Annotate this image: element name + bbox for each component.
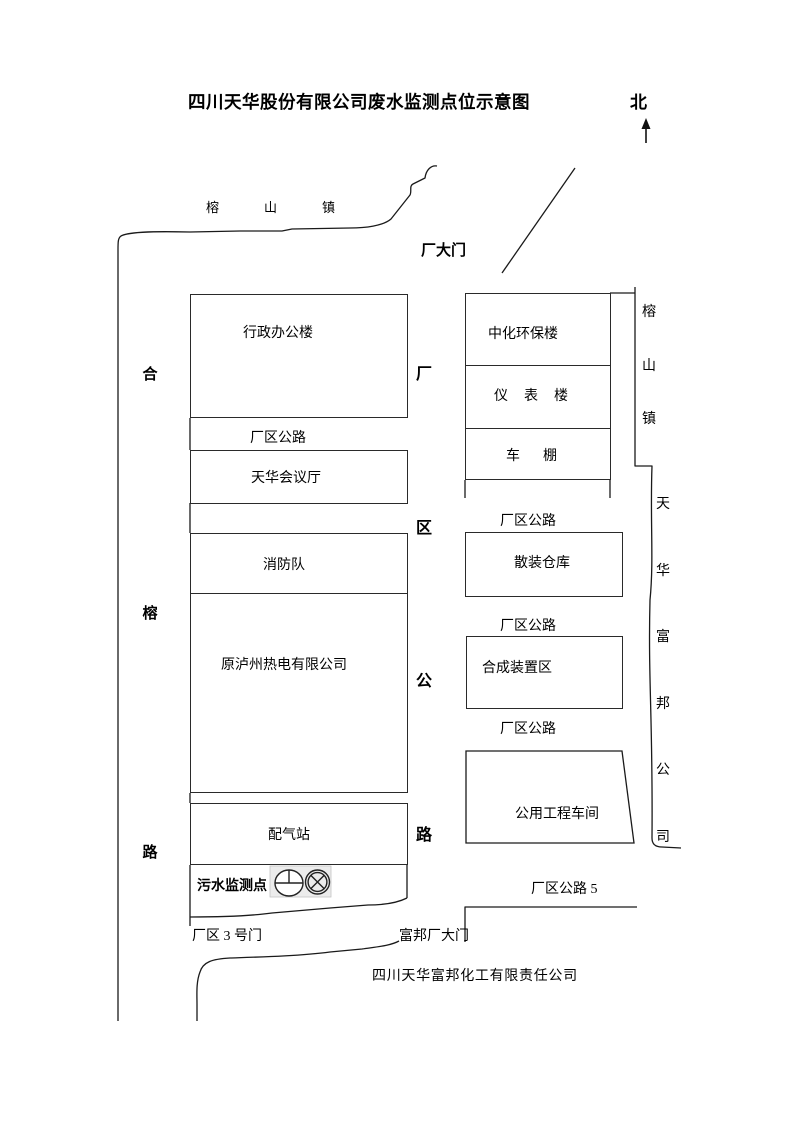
road5-label: 厂区公路 5 xyxy=(531,882,598,898)
sewage-monitoring-label: 污水监测点 xyxy=(197,877,267,893)
building-synth: 合成装置区 xyxy=(466,636,623,709)
building-label: 车棚 xyxy=(506,449,580,464)
building-bulk: 散装仓库 xyxy=(465,532,623,597)
building-utility-outline xyxy=(466,751,634,843)
vertical-char: 公 xyxy=(656,764,670,778)
vertical-char: 厂 xyxy=(416,367,432,383)
vertical-char: 富 xyxy=(656,631,670,645)
building-admin: 行政办公楼 xyxy=(190,294,408,418)
building-shed: 车棚 xyxy=(465,429,611,480)
left-road-vertical-label: 合榕路 xyxy=(141,367,159,860)
vertical-char: 合 xyxy=(142,367,157,382)
road-label-4: 厂区公路 xyxy=(500,722,556,738)
middle-road-vertical-label: 厂区公路 xyxy=(415,367,433,844)
diagram-title: 四川天华股份有限公司废水监测点位示意图 xyxy=(188,92,530,112)
fubang-company-label: 四川天华富邦化工有限责任公司 xyxy=(372,969,578,985)
building-fire: 消防队 xyxy=(190,533,408,594)
building-env: 中化环保楼 xyxy=(465,293,611,366)
main-gate-label: 厂大门 xyxy=(421,242,466,259)
vertical-char: 华 xyxy=(656,565,670,579)
building-label: 配气站 xyxy=(268,828,310,843)
vertical-char: 镇 xyxy=(642,413,656,427)
circle-crosshair-monitor-icon xyxy=(275,870,303,896)
vertical-char: 公 xyxy=(416,674,432,690)
building-label: 合成装置区 xyxy=(482,661,552,676)
building-utility-label: 公用工程车间 xyxy=(515,807,599,823)
building-conference: 天华会议厅 xyxy=(190,450,408,504)
road-label-1: 厂区公路 xyxy=(250,431,306,447)
road5-corner-line xyxy=(465,907,637,942)
right-town-vertical-label: 榕山镇 xyxy=(641,306,657,427)
town-label-top: 榕山镇 xyxy=(206,201,380,216)
vertical-char: 天 xyxy=(656,498,670,512)
vertical-char: 路 xyxy=(142,845,157,860)
gate3-label: 厂区 3 号门 xyxy=(192,929,262,945)
vertical-char: 区 xyxy=(416,521,432,537)
building-label: 散装仓库 xyxy=(514,556,570,571)
road-label-2: 厂区公路 xyxy=(500,514,556,530)
vertical-char: 司 xyxy=(656,831,670,845)
building-instrument: 仪表楼 xyxy=(465,366,611,429)
vertical-char: 榕 xyxy=(642,306,656,320)
building-label: 中化环保楼 xyxy=(488,327,558,342)
vertical-char: 邦 xyxy=(656,698,670,712)
road-label-3: 厂区公路 xyxy=(500,619,556,635)
monitor-strip-bottom-line xyxy=(190,898,407,917)
fubang-gate-label: 富邦厂大门 xyxy=(399,929,469,945)
building-gas: 配气站 xyxy=(190,803,408,865)
diagram-canvas: 四川天华股份有限公司废水监测点位示意图 北 榕山镇 厂大门 行政办公楼 厂区公路… xyxy=(0,0,793,1121)
vertical-char: 山 xyxy=(642,360,656,374)
north-label: 北 xyxy=(630,93,647,113)
building-label: 原泸州热电有限公司 xyxy=(221,658,347,673)
north-up-arrow-icon xyxy=(642,118,651,143)
monitoring-symbols xyxy=(270,866,331,897)
right-company-vertical-label: 天华富邦公司 xyxy=(655,498,671,845)
building-label: 行政办公楼 xyxy=(243,326,313,341)
building-power: 原泸州热电有限公司 xyxy=(190,594,408,793)
building-label: 消防队 xyxy=(263,558,305,573)
vertical-char: 榕 xyxy=(142,606,157,621)
building-label: 天华会议厅 xyxy=(251,471,321,486)
main-gate-diagonal-line xyxy=(502,168,575,273)
building-label: 仪表楼 xyxy=(494,389,584,404)
fubang-boundary-line xyxy=(197,941,399,1021)
vertical-char: 路 xyxy=(416,828,432,844)
